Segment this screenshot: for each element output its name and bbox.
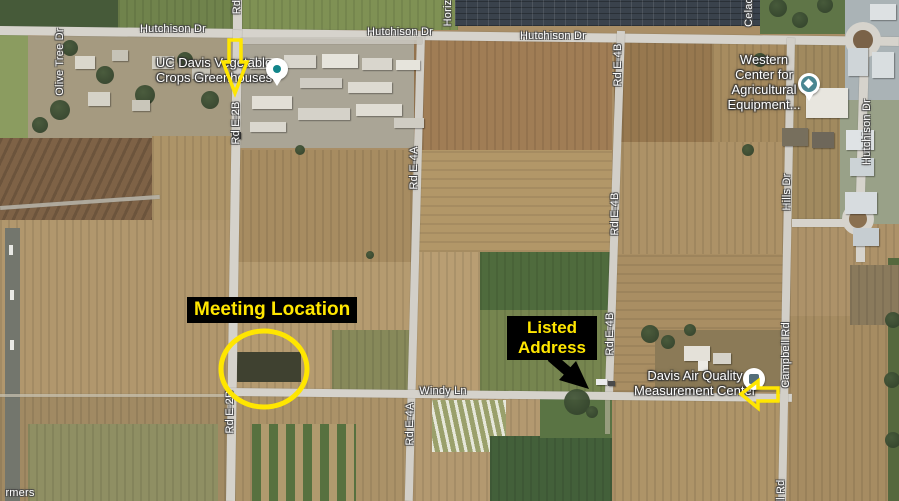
road — [0, 394, 229, 397]
field-patch — [414, 252, 480, 392]
building — [284, 55, 316, 68]
road-label: ll Rd — [775, 479, 787, 501]
tree — [32, 117, 48, 133]
road-label: Hutchison Dr — [140, 23, 206, 35]
field-patch — [0, 30, 28, 140]
tree — [295, 145, 305, 155]
road-label: Olive Tree Dr — [54, 28, 66, 95]
building — [872, 52, 894, 78]
runway-marking — [10, 290, 14, 300]
building — [298, 108, 350, 120]
poi-label-line: Davis Air Quality — [634, 368, 756, 383]
poi-label-western-center[interactable]: WesternCenter forAgriculturalEquipment..… — [728, 52, 801, 112]
field-patch — [414, 36, 612, 150]
runway-marking — [10, 340, 14, 350]
poi-label-uc-davis-greenhouses[interactable]: UC Davis VegetableCrops Greenhouses — [156, 55, 272, 85]
tree — [586, 406, 598, 418]
road-label: rmers — [5, 487, 34, 499]
map-pin-icon-uc-davis-greenhouses[interactable] — [266, 58, 288, 88]
field-patch — [614, 142, 787, 254]
road-label: Rd E-2B — [230, 102, 242, 145]
building — [252, 96, 292, 109]
road-label: Hutchison Dr — [520, 30, 586, 42]
building — [322, 54, 358, 68]
pin-tail — [804, 93, 814, 101]
field-patch — [237, 352, 301, 382]
poi-label-line: Equipment... — [728, 97, 801, 112]
graduation-cap-icon — [804, 79, 814, 89]
tree — [201, 91, 219, 109]
building — [75, 56, 95, 69]
building — [394, 118, 424, 128]
building — [812, 132, 834, 148]
building — [300, 78, 342, 88]
building — [348, 82, 392, 93]
road-label: Rd E-4B — [612, 44, 624, 87]
road-label: Horiz — [442, 0, 454, 26]
poi-label-line: UC Davis Vegetable — [156, 55, 272, 70]
pin-glyph — [273, 65, 281, 73]
road-label: Rd E-2B — [224, 391, 236, 434]
satellite-map[interactable]: Hutchison DrHutchison DrHutchison DrHutc… — [0, 0, 899, 501]
pin-glyph — [749, 374, 759, 384]
building — [684, 346, 710, 361]
road — [240, 38, 422, 44]
map-pin-icon-davis-air-quality[interactable] — [743, 368, 765, 398]
road — [792, 219, 844, 227]
tree — [742, 144, 754, 156]
building — [848, 48, 868, 76]
building — [853, 228, 879, 246]
tree — [661, 335, 675, 349]
runway-marking — [9, 245, 13, 255]
listed-address-line1: Listed — [512, 318, 592, 338]
building — [112, 50, 128, 61]
road-label: Rd E-4B — [604, 313, 616, 356]
field-patch — [414, 150, 612, 252]
tree — [884, 372, 899, 388]
building — [132, 100, 150, 111]
field-patch — [252, 424, 356, 501]
building — [845, 192, 877, 214]
poi-label-line: Crops Greenhouses — [156, 70, 272, 85]
road-label: Rd E-4A — [404, 403, 416, 446]
field-patch — [480, 252, 612, 310]
poi-label-line: Measurement Center — [634, 383, 756, 398]
field-patch — [490, 436, 612, 501]
building — [396, 60, 420, 70]
building — [782, 128, 808, 146]
meeting-location-annotation: Meeting Location — [187, 297, 357, 323]
building — [88, 92, 110, 106]
field-patch — [614, 394, 787, 501]
road-label: Hutchison Dr — [367, 26, 433, 38]
tree — [792, 12, 808, 28]
building — [870, 4, 896, 20]
road-label: Rd — [231, 0, 243, 14]
pin-glyph — [801, 76, 817, 92]
building — [356, 104, 402, 116]
road-label: Rd E-4A — [408, 147, 420, 190]
building — [608, 381, 615, 386]
road-label: Celad — [743, 0, 755, 27]
listed-address-annotation: Listed Address — [507, 316, 597, 360]
building — [250, 122, 286, 132]
field-patch — [789, 316, 899, 501]
field-patch — [332, 330, 412, 392]
poi-label-davis-air-quality[interactable]: Davis Air QualityMeasurement Center — [634, 368, 756, 398]
field-patch — [152, 136, 232, 224]
map-pin-icon-western-center[interactable] — [798, 73, 820, 103]
tree — [641, 325, 659, 343]
road-label: Hills Dr — [781, 173, 793, 210]
road-label: Rd E-4B — [609, 193, 621, 236]
field-patch — [5, 228, 20, 501]
tree — [684, 324, 696, 336]
road-label: Campbell Rd — [780, 322, 792, 388]
poi-label-line: Western — [728, 52, 801, 67]
poi-label-line: Agricultural — [728, 82, 801, 97]
field-patch — [28, 424, 218, 501]
tree — [885, 432, 899, 448]
building — [362, 58, 392, 70]
tree — [366, 251, 374, 259]
road-label: Windy Ln — [419, 385, 466, 397]
tree — [50, 100, 70, 120]
road-label: Hutchison Dr — [861, 99, 873, 165]
pin-tail — [272, 78, 282, 86]
poi-label-line: Center for — [728, 67, 801, 82]
field-patch — [614, 36, 712, 142]
field-patch — [234, 150, 412, 262]
building — [596, 379, 607, 385]
tree — [96, 66, 114, 84]
listed-address-line2: Address — [512, 338, 592, 358]
building — [713, 353, 731, 364]
tree — [885, 312, 899, 328]
field-patch — [455, 0, 760, 26]
